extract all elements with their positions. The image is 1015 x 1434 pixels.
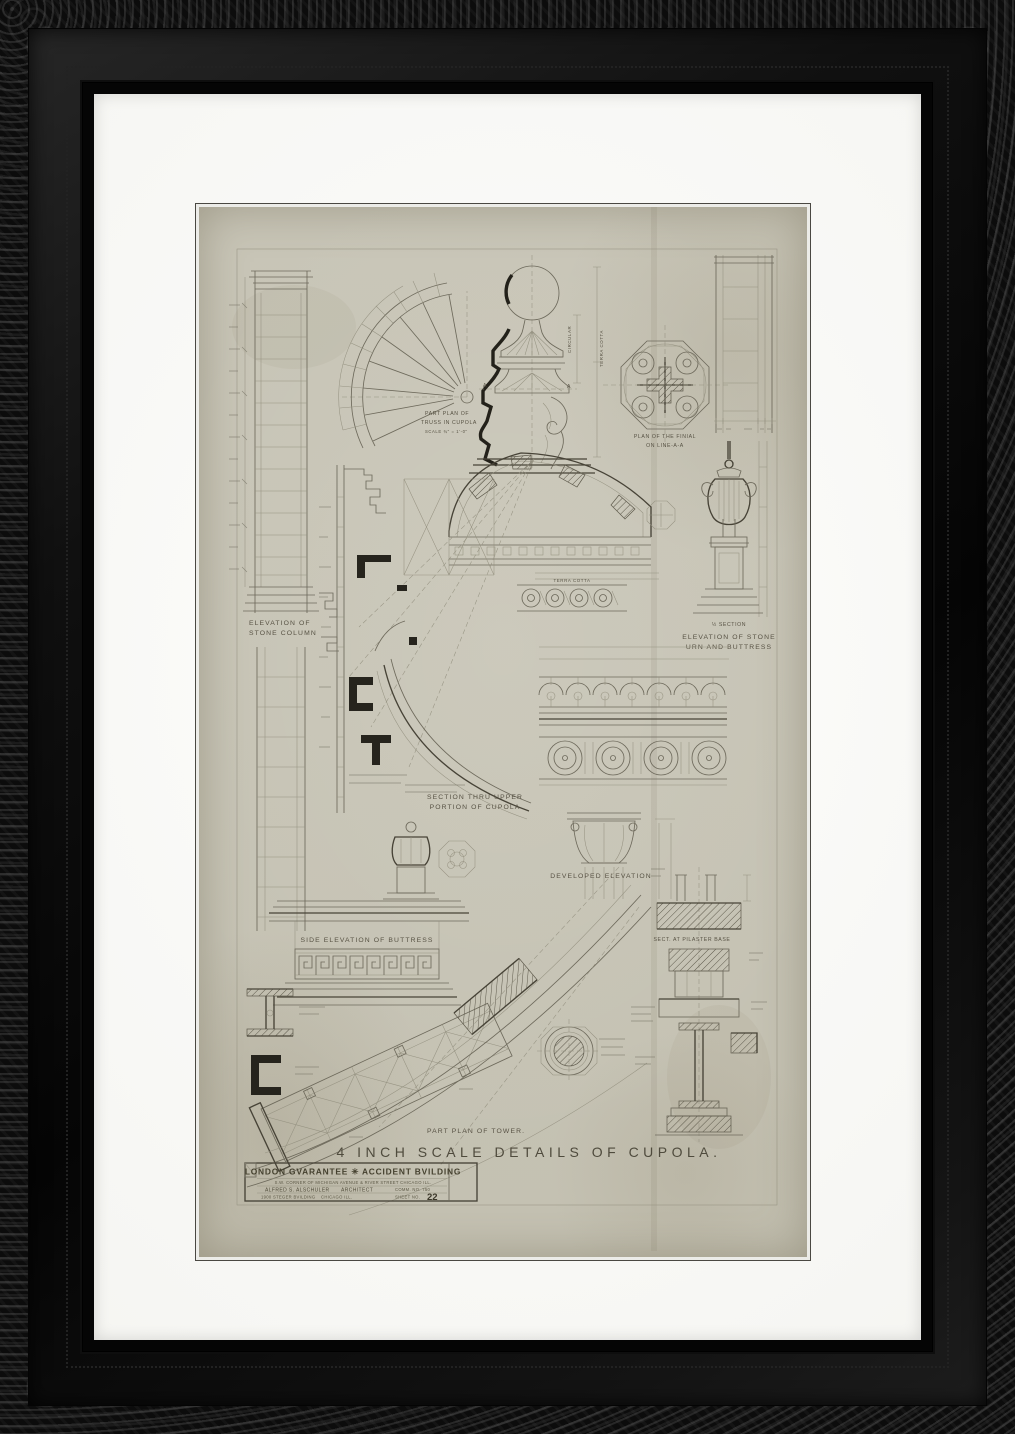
label-terra-cotta-vertical: TERRA COTTA [599, 330, 604, 367]
title-block-sheet-label: SHEET NO. [395, 1195, 420, 1200]
label-terra-cotta: TERRA COTTA [553, 578, 590, 583]
architectural-drawing: ELEVATION OF STONE COLUMN PART [199, 207, 801, 1251]
label-part-plan-truss-1: PART PLAN OF [425, 411, 469, 417]
sheet-main-title: 4 INCH SCALE DETAILS OF CUPOLA. [336, 1144, 721, 1160]
section-upper-cupola [319, 459, 534, 819]
title-block-architect: ALFRED S. ALSCHULER [265, 1188, 330, 1194]
label-mark-a-right: A [567, 384, 571, 390]
label-elevation-stone-column-1: ELEVATION OF [249, 620, 311, 627]
label-section-upper-2: PORTION OF CUPOLA [430, 804, 521, 811]
greek-key-band [299, 956, 431, 975]
plan-of-finial-octagon [603, 325, 729, 447]
label-part-plan-truss-2: TRUSS IN CUPOLA [421, 420, 477, 426]
stone-column-elevation [229, 271, 319, 931]
title-block-address: S.W. CORNER OF MICHIGAN AVENUE & RIVER S… [275, 1180, 432, 1185]
label-part-plan-tower: PART PLAN OF TOWER. [427, 1128, 525, 1135]
title-block-commission: COMM. NO. 750 [395, 1187, 430, 1192]
label-elev-urn-2: URN AND BUTTRESS [686, 644, 772, 651]
fan-rungs [340, 273, 440, 430]
label-circular: CIRCULAR [567, 326, 572, 353]
drawing-sheet: ELEVATION OF STONE COLUMN PART [199, 207, 807, 1257]
label-side-elev-buttress: SIDE ELEVATION OF BUTTRESS [301, 937, 434, 944]
title-block: LONDON GVARANTEE ✳ ACCIDENT BVILDING S.W… [245, 1163, 477, 1203]
label-section-upper-1: SECTION THRU UPPER [427, 794, 523, 801]
label-plan-finial-2: ON LINE-A-A [646, 443, 684, 449]
cupola-dome-section [449, 453, 675, 611]
framed-print-photo: ELEVATION OF STONE COLUMN PART [0, 0, 1015, 1434]
label-developed-elevation: DEVELOPED ELEVATION [550, 873, 651, 880]
buttress-side-elevation [269, 901, 469, 1005]
label-elevation-stone-column-2: STONE COLUMN [249, 630, 317, 637]
paper-stain [232, 285, 356, 369]
label-part-plan-truss-scale: SCALE ¾" = 1'-0" [425, 429, 468, 434]
small-urn [383, 822, 439, 899]
mat-opening: ELEVATION OF STONE COLUMN PART [196, 204, 810, 1260]
label-sect-pilaster-base: SECT. AT PILASTER BASE [653, 937, 730, 943]
octagon-rosette [439, 841, 475, 877]
right-pilaster-elevation [714, 255, 776, 433]
title-block-architect-title: ARCHITECT [341, 1188, 373, 1194]
label-elev-urn-1: ELEVATION OF STONE [682, 634, 775, 641]
title-block-office-city: CHICAGO ILL. [321, 1195, 352, 1200]
stone-urn-elevation [693, 441, 767, 617]
label-half-section: ½ SECTION [712, 621, 746, 628]
title-block-office: 1900 STEGER BVILDING [261, 1195, 315, 1200]
title-block-sheet-number: 22 [427, 1192, 438, 1203]
label-mark-a-left: A [483, 383, 487, 389]
title-block-building: LONDON GVARANTEE ✳ ACCIDENT BVILDING [245, 1167, 461, 1177]
developed-elevation [539, 647, 729, 899]
label-plan-finial-1: PLAN OF THE FINIAL [634, 434, 696, 440]
finial-section-elevation [469, 255, 601, 473]
